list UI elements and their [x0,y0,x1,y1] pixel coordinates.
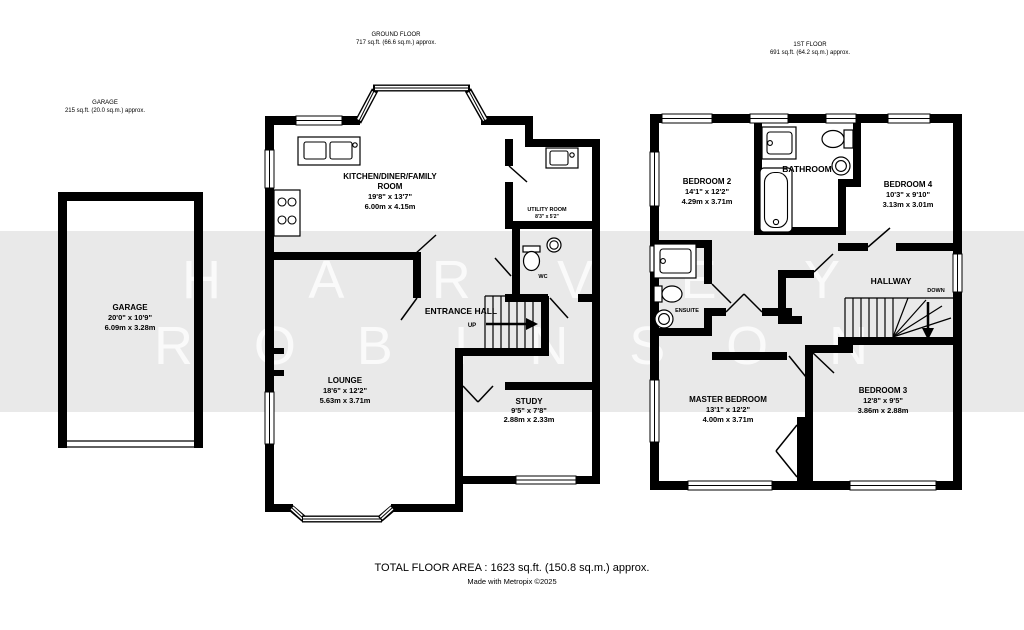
up-label: UP [468,323,476,329]
study-dim-imperial: 9'5" x 7'8" [511,406,547,415]
kitchen-dim-metric: 6.00m x 4.15m [365,202,416,211]
kitchen-sink-icon [298,137,360,165]
wc-basin-icon [547,238,561,252]
bedroom4-label: BEDROOM 4 [884,180,933,189]
utility-sink-icon [546,148,578,168]
ensuite-sink-icon [654,244,696,278]
garage-label: GARAGE [112,303,148,312]
bedroom2-label: BEDROOM 2 [683,177,732,186]
total-floor-area: TOTAL FLOOR AREA : 1623 sq.ft. (150.8 sq… [375,562,650,574]
garage-dim-metric: 6.09m x 3.28m [105,323,156,332]
bathroom-basin-icon [832,157,850,175]
ensuite-label: ENSUITE [675,308,699,314]
garage-header-title: GARAGE [92,100,118,106]
wc-label: WC [538,274,547,280]
lounge-bay-window [291,508,393,519]
entrance-hall-label: ENTRANCE HALL [425,306,497,316]
bedroom3-dim-imperial: 12'8" x 9'5" [863,396,903,405]
bedroom4-dim-imperial: 10'3" x 9'10" [886,190,930,199]
garage-dim-imperial: 20'0" x 10'9" [108,313,152,322]
kitchen-label: KITCHEN/DINER/FAMILY [343,172,437,181]
bathroom-toilet-icon [822,130,853,148]
first-header-area: 691 sq.ft. (64.2 sq.m.) approx. [770,50,850,56]
hallway-label: HALLWAY [871,276,912,286]
bedroom2-dim-imperial: 14'1" x 12'2" [685,187,729,196]
metropix-credit: Made with Metropix ©2025 [467,577,556,586]
down-label: DOWN [927,288,944,294]
bathroom-label: BATHROOM [782,164,831,174]
kitchen-dim-imperial: 19'8" x 13'7" [368,192,412,201]
garage-wall-top [58,192,203,201]
bath-icon [760,168,792,232]
bedroom3-label: BEDROOM 3 [859,386,908,395]
kitchen-bay-window [358,88,486,122]
study-label: STUDY [515,397,543,406]
garage-header-area: 215 sq.ft. (20.0 sq.m.) approx. [65,108,145,114]
wc-toilet-icon [523,246,540,271]
utility-label: UTILITY ROOM [527,207,567,213]
footer: TOTAL FLOOR AREA : 1623 sq.ft. (150.8 sq… [375,562,650,586]
utility-dim-metric: 2.51m x 1.57m [530,221,564,227]
floorplan-svg: HARVEY ROBINSON GARAGE 215 sq.ft. (20.0 … [0,0,1024,630]
ground-header-title: GROUND FLOOR [371,32,421,38]
floorplan-page: HARVEY ROBINSON GARAGE 215 sq.ft. (20.0 … [0,0,1024,630]
bedroom2-dim-metric: 4.29m x 3.71m [682,197,733,206]
garage-wall-left [58,192,67,448]
lounge-dim-imperial: 18'6" x 12'2" [323,386,367,395]
study-dim-metric: 2.88m x 2.33m [504,415,555,424]
first-header-title: 1ST FLOOR [793,42,827,48]
ensuite-shower-icon [655,310,673,328]
garage-wall-right [194,192,203,448]
lounge-label: LOUNGE [328,376,363,385]
hob-icon [274,190,300,236]
ground-header-area: 717 sq.ft. (66.6 sq.m.) approx. [356,40,436,46]
ensuite-toilet-icon [654,286,682,302]
utility-dim-imperial: 8'3" x 5'2" [535,214,559,220]
master-dim-imperial: 13'1" x 12'2" [706,405,750,414]
bedroom4-dim-metric: 3.13m x 3.01m [883,200,934,209]
master-label: MASTER BEDROOM [689,395,767,404]
bedroom3-dim-metric: 3.86m x 2.88m [858,406,909,415]
kitchen-label2: ROOM [378,182,403,191]
master-dim-metric: 4.00m x 3.71m [703,415,754,424]
bathroom-sink-icon [762,127,796,159]
lounge-dim-metric: 5.63m x 3.71m [320,396,371,405]
